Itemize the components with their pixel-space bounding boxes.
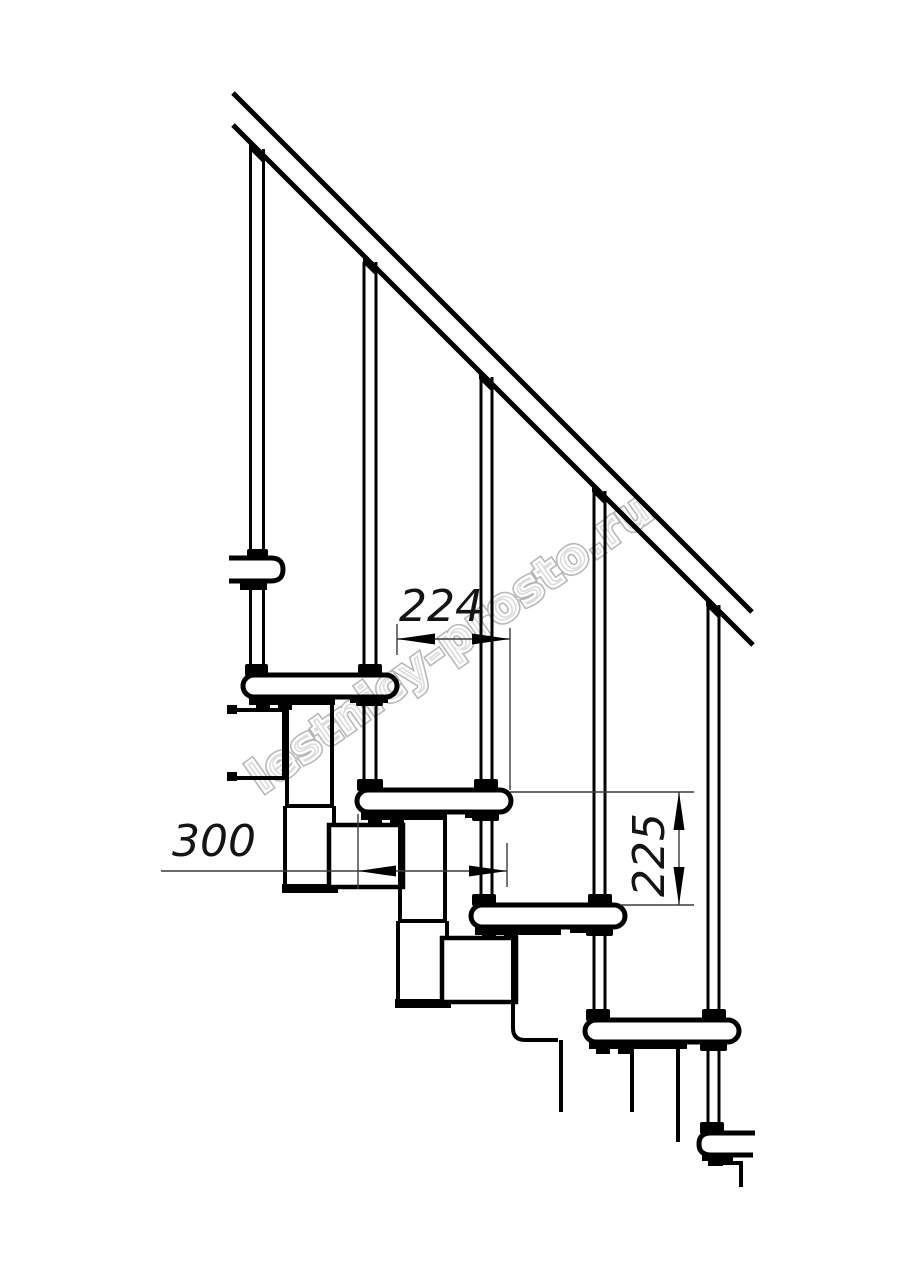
arrow-down-icon	[674, 867, 685, 905]
watermark: lestnicy-prosto.ru lestnicy-prosto.ru	[238, 481, 662, 803]
dimension-label-300: 300	[172, 816, 256, 867]
dimension-label-224: 224	[399, 581, 483, 632]
tread-top-fragment	[229, 558, 283, 581]
support-column-4	[632, 1048, 678, 1142]
staircase-drawing-canvas: lestnicy-prosto.ru lestnicy-prosto.ru	[0, 0, 914, 1280]
support-square-2	[442, 938, 516, 1002]
tread-4	[585, 1020, 739, 1042]
dimension-225: 225	[510, 792, 694, 905]
underside-3	[475, 927, 592, 940]
support-square-1	[329, 825, 403, 887]
dimensions: 224 300 225	[161, 581, 694, 905]
tread-3	[471, 905, 625, 927]
watermark-text: lestnicy-prosto.ru	[238, 481, 662, 803]
baluster-1	[251, 149, 264, 670]
support-break-bottom	[712, 1163, 741, 1187]
tread-bottom-fragment	[699, 1133, 755, 1155]
dimension-label-225: 225	[624, 813, 675, 897]
support-column-3	[513, 934, 561, 1112]
underside-4	[589, 1042, 687, 1054]
arrow-right-icon	[469, 866, 507, 877]
arrow-up-icon	[674, 792, 685, 830]
tread-2	[357, 790, 511, 812]
staircase-drawing-page: lestnicy-prosto.ru lestnicy-prosto.ru	[0, 0, 914, 1280]
